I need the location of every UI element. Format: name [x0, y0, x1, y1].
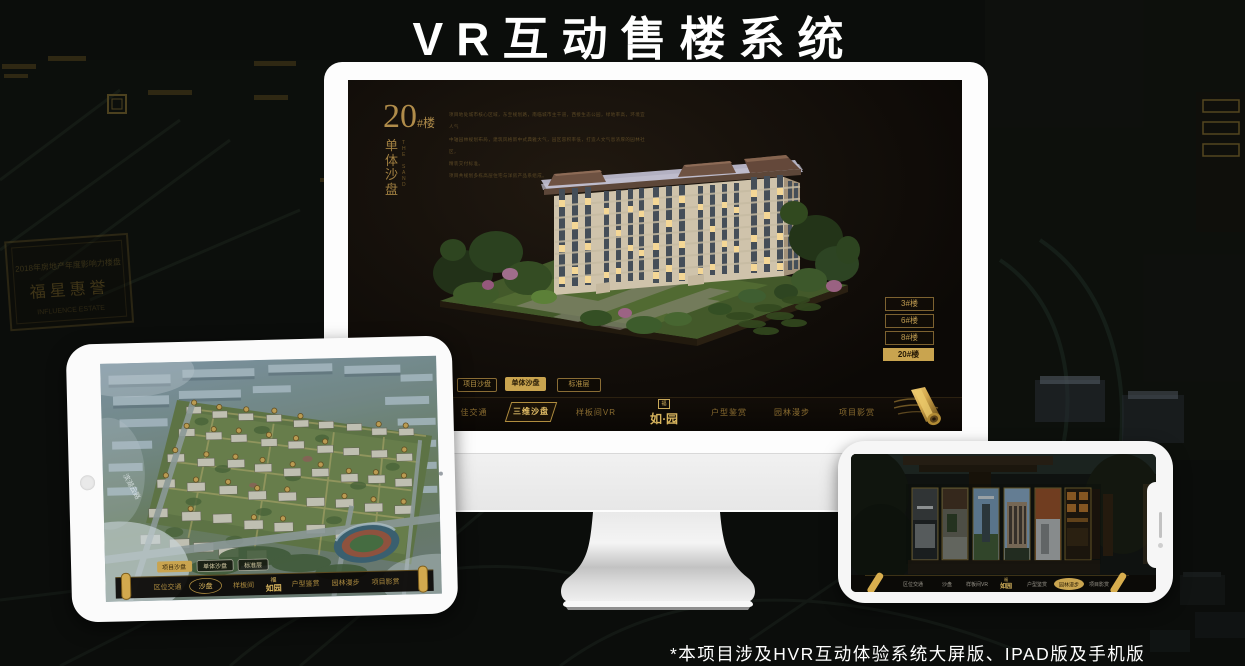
svg-text:如园: 如园 — [266, 583, 282, 593]
svg-text:福: 福 — [270, 576, 276, 584]
svg-text:沙盘: 沙盘 — [198, 581, 212, 590]
svg-text:区位交通: 区位交通 — [903, 581, 923, 588]
svg-text:样板间: 样板间 — [233, 580, 254, 590]
svg-text:福: 福 — [1004, 576, 1008, 582]
svg-text:项目影赏: 项目影赏 — [1089, 581, 1109, 588]
svg-text:园林漫步: 园林漫步 — [1059, 582, 1079, 589]
svg-text:如园: 如园 — [1000, 582, 1012, 590]
svg-text:沙盘: 沙盘 — [942, 581, 952, 588]
svg-text:户型鉴赏: 户型鉴赏 — [1027, 581, 1047, 588]
svg-text:样板间VR: 样板间VR — [966, 581, 988, 588]
